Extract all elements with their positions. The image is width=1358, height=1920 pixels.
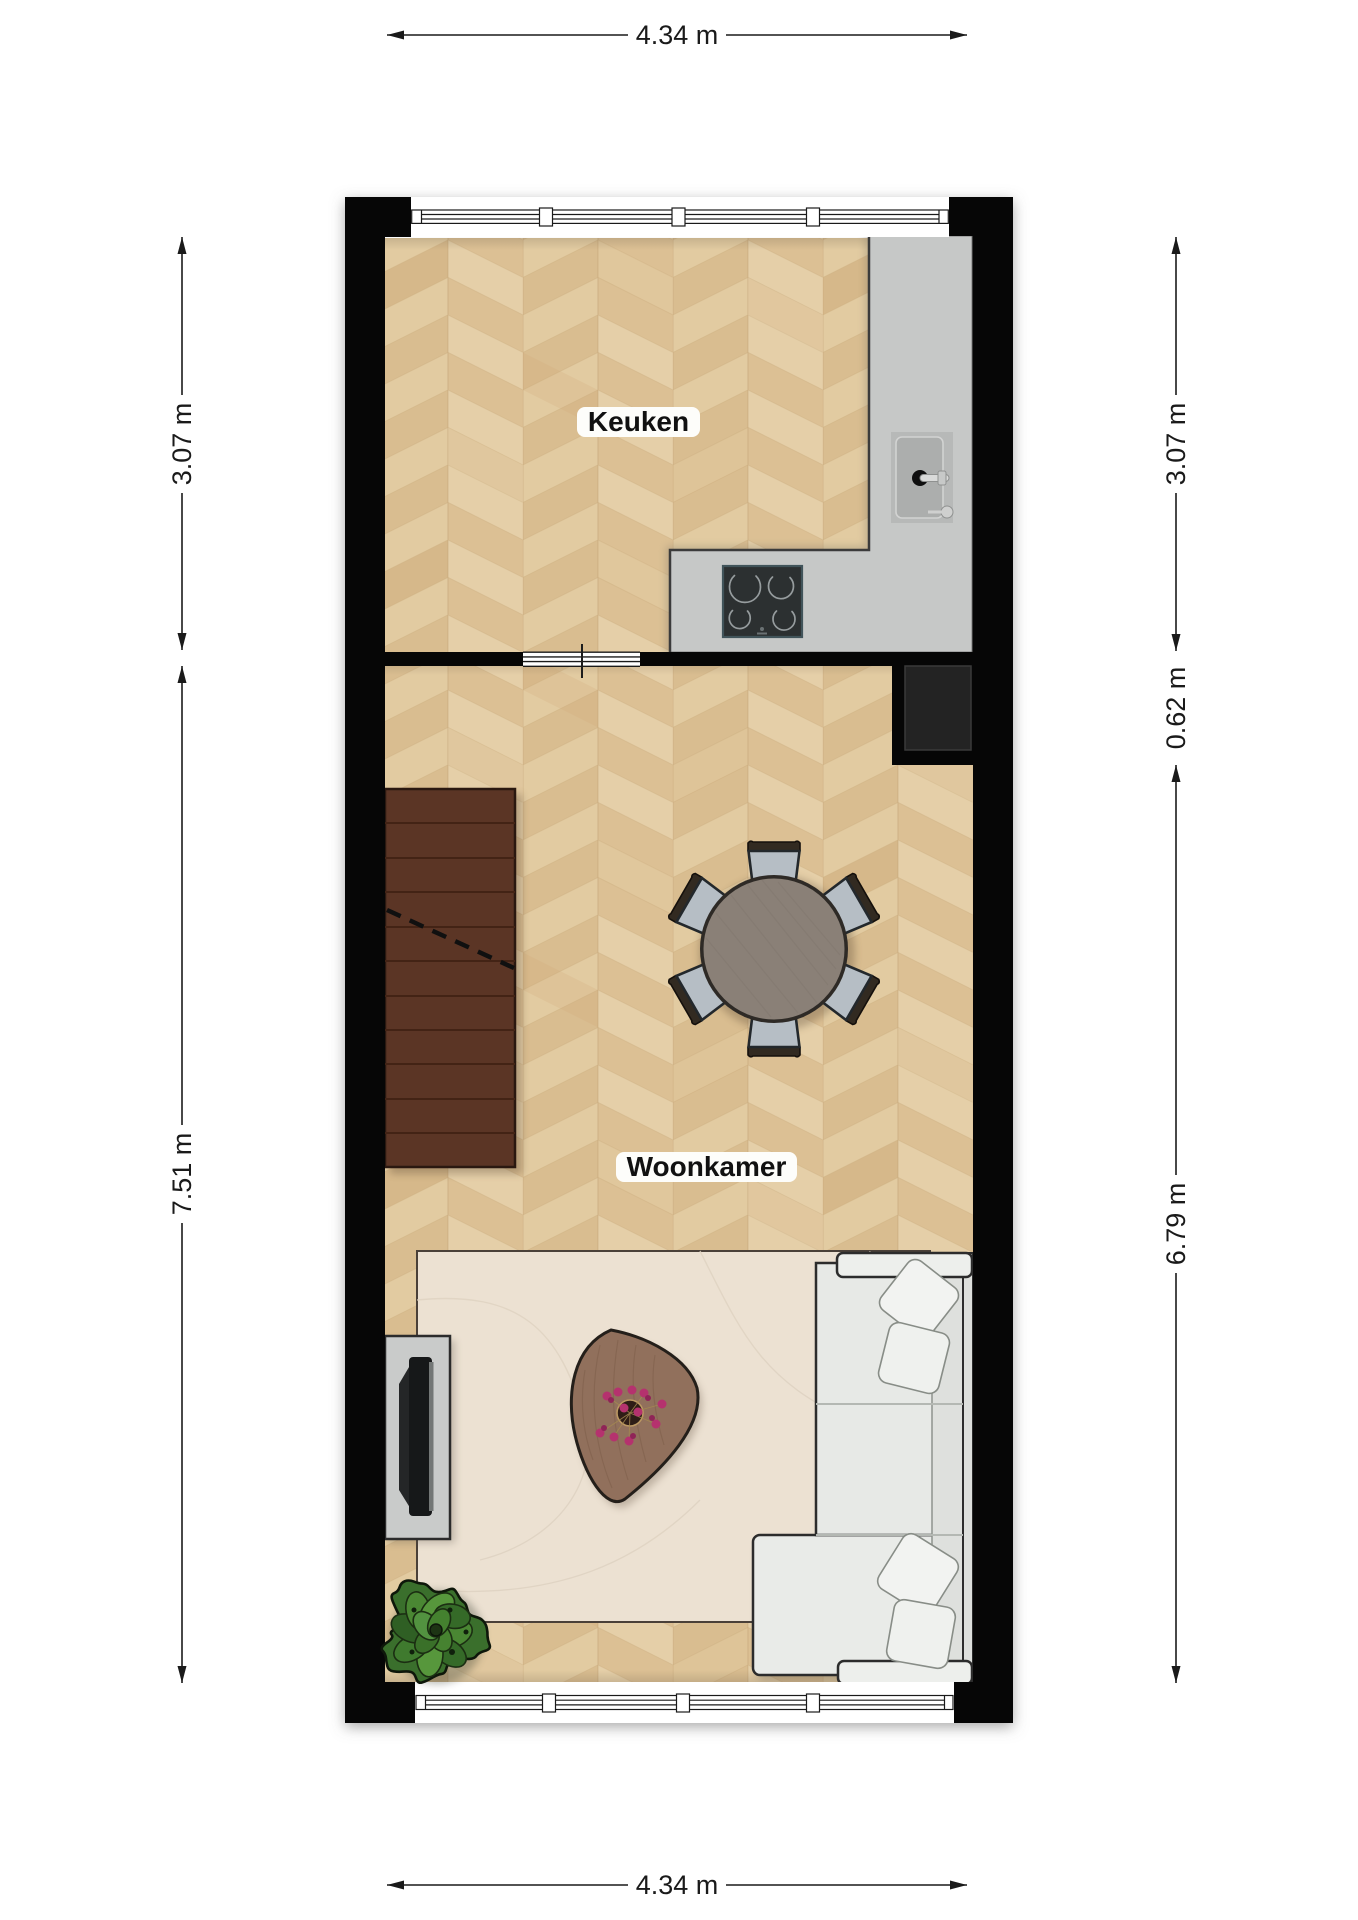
svg-text:6.79 m: 6.79 m (1161, 1183, 1191, 1266)
svg-text:4.34 m: 4.34 m (636, 1870, 719, 1900)
svg-text:4.34 m: 4.34 m (636, 20, 719, 50)
svg-text:3.07 m: 3.07 m (1161, 403, 1191, 486)
svg-text:Keuken: Keuken (588, 406, 689, 437)
svg-text:7.51 m: 7.51 m (167, 1133, 197, 1216)
svg-text:3.07 m: 3.07 m (167, 403, 197, 486)
svg-text:0.62 m: 0.62 m (1161, 667, 1191, 750)
svg-text:Woonkamer: Woonkamer (627, 1151, 787, 1182)
